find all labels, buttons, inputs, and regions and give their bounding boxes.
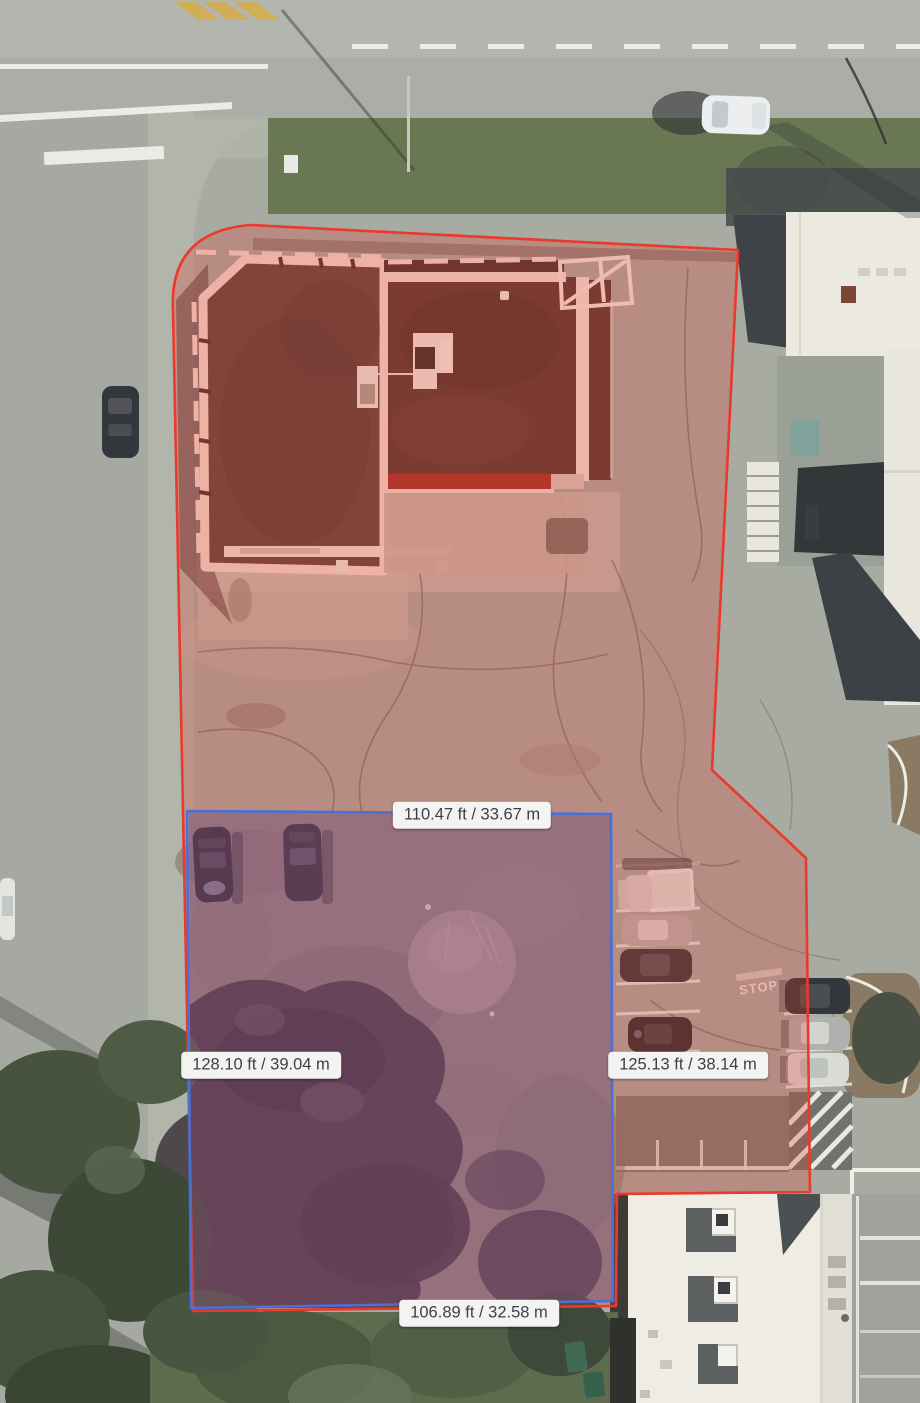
map-viewport[interactable]: STOP — [0, 0, 920, 1403]
rooftop-equipment — [791, 420, 819, 456]
hvac-unit — [686, 1208, 736, 1252]
parked-car — [0, 878, 15, 940]
dumpster — [583, 1371, 606, 1398]
hvac-unit — [698, 1344, 738, 1384]
aerial-imagery: STOP — [0, 0, 920, 1403]
measurement-label-bottom[interactable]: 106.89 ft / 32.58 m — [399, 1300, 559, 1327]
dumpster — [564, 1341, 588, 1373]
grass-strip — [268, 118, 920, 226]
utility-box — [284, 155, 298, 173]
measurement-label-left[interactable]: 128.10 ft / 39.04 m — [181, 1052, 341, 1079]
bottom-building — [610, 1194, 852, 1403]
roof-vent — [841, 286, 856, 303]
measurement-label-right[interactable]: 125.13 ft / 38.14 m — [608, 1052, 768, 1079]
building-roof — [628, 1194, 852, 1403]
parked-car — [102, 386, 139, 458]
measurement-label-top[interactable]: 110.47 ft / 33.67 m — [393, 802, 551, 829]
hvac-unit — [688, 1276, 738, 1322]
